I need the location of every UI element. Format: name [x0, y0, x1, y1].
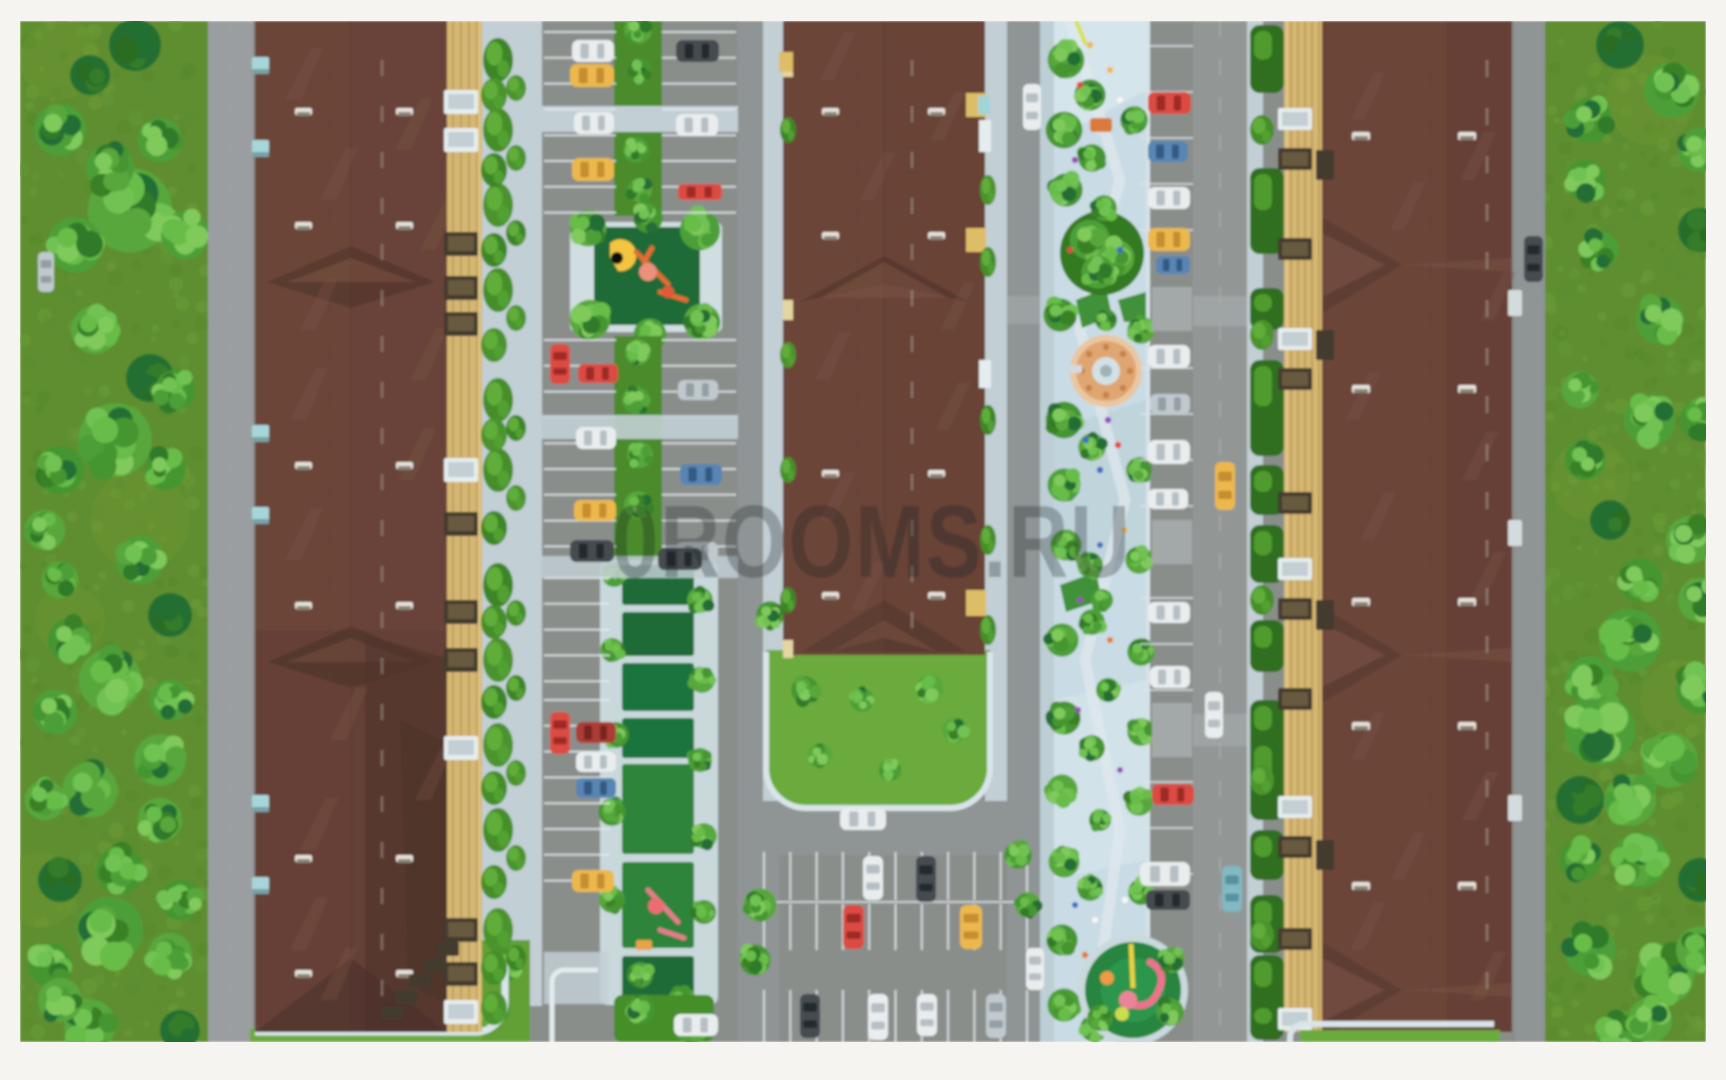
svg-text:0ROOMS.RU: 0ROOMS.RU — [612, 484, 1132, 599]
